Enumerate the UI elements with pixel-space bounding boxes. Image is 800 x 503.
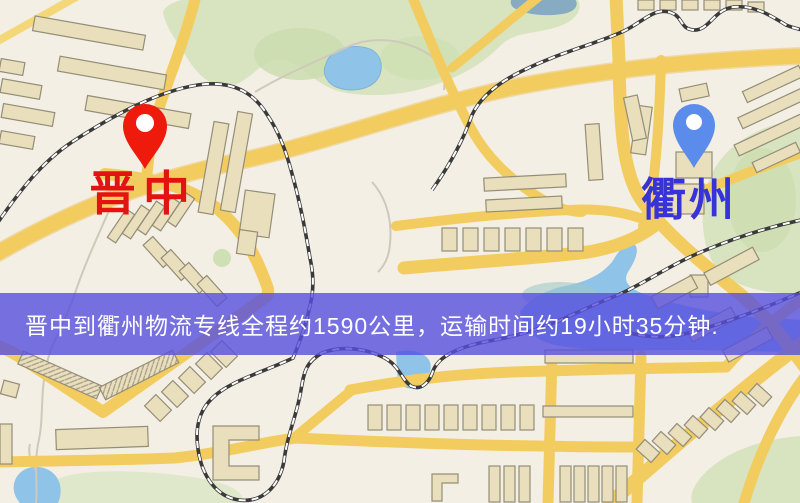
route-info-banner: 晋中到衢州物流专线全程约1590公里，运输时间约19小时35分钟. (0, 293, 800, 355)
route-info-text: 晋中到衢州物流专线全程约1590公里，运输时间约19小时35分钟. (25, 307, 719, 341)
origin-city-label: 晋中 (89, 172, 197, 219)
destination-pin-hole (686, 114, 702, 130)
origin-pin-hole (136, 114, 154, 132)
destination-city-label: 衢州 (641, 178, 737, 223)
map-canvas (0, 0, 800, 503)
logistics-route-map: 晋中 衢州 晋中到衢州物流专线全程约1590公里，运输时间约19小时35分钟. (0, 0, 800, 503)
